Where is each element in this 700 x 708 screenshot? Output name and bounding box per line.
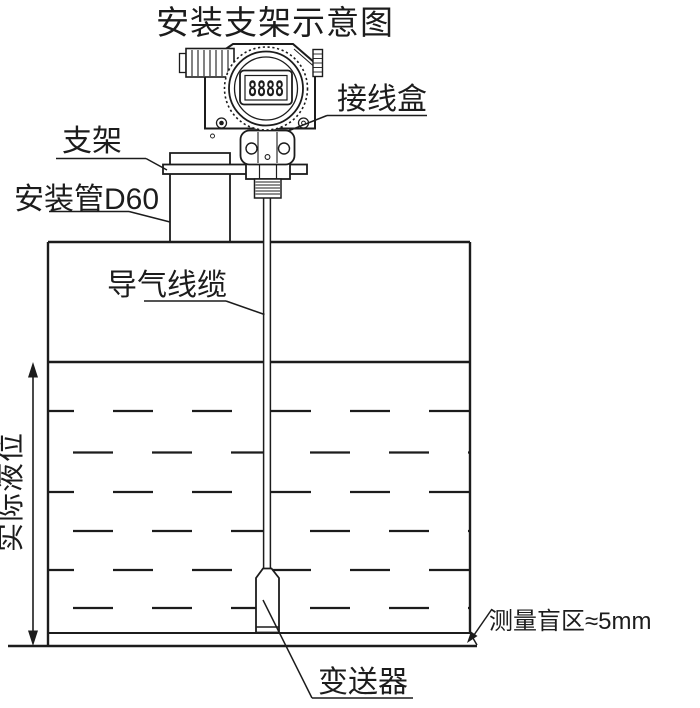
transmitter-label: 变送器 xyxy=(318,666,408,699)
neck-bolt-right xyxy=(279,143,290,154)
neck-center-dot xyxy=(265,155,270,160)
blind-zone-label: 测量盲区≈5mm xyxy=(489,608,652,635)
hex-nut xyxy=(246,164,290,180)
lcd-digits: 8888 xyxy=(248,77,284,101)
cable-gland xyxy=(180,49,235,78)
actual-level-label: 实际液位 xyxy=(0,432,27,552)
air-cable-label: 导气线缆 xyxy=(107,269,227,302)
bracket-installation-diagram: 8888 实际液位 xyxy=(0,0,700,708)
neck-bolt-left xyxy=(246,143,257,154)
threaded-stub xyxy=(255,179,282,198)
display-face: 8888 xyxy=(225,47,308,130)
probe-transmitter xyxy=(256,569,279,633)
junction-box-label: 接线盒 xyxy=(337,83,427,116)
installation-diagram-page: 8888 实际液位 xyxy=(0,0,700,708)
neck-mount xyxy=(241,131,295,165)
mounting-pipe-label: 安装管D60 xyxy=(14,183,159,216)
diagram-title: 安装支架示意图 xyxy=(156,4,394,41)
side-plug xyxy=(313,50,323,77)
bracket-label: 支架 xyxy=(62,125,122,158)
air-guide-cable xyxy=(264,198,271,570)
